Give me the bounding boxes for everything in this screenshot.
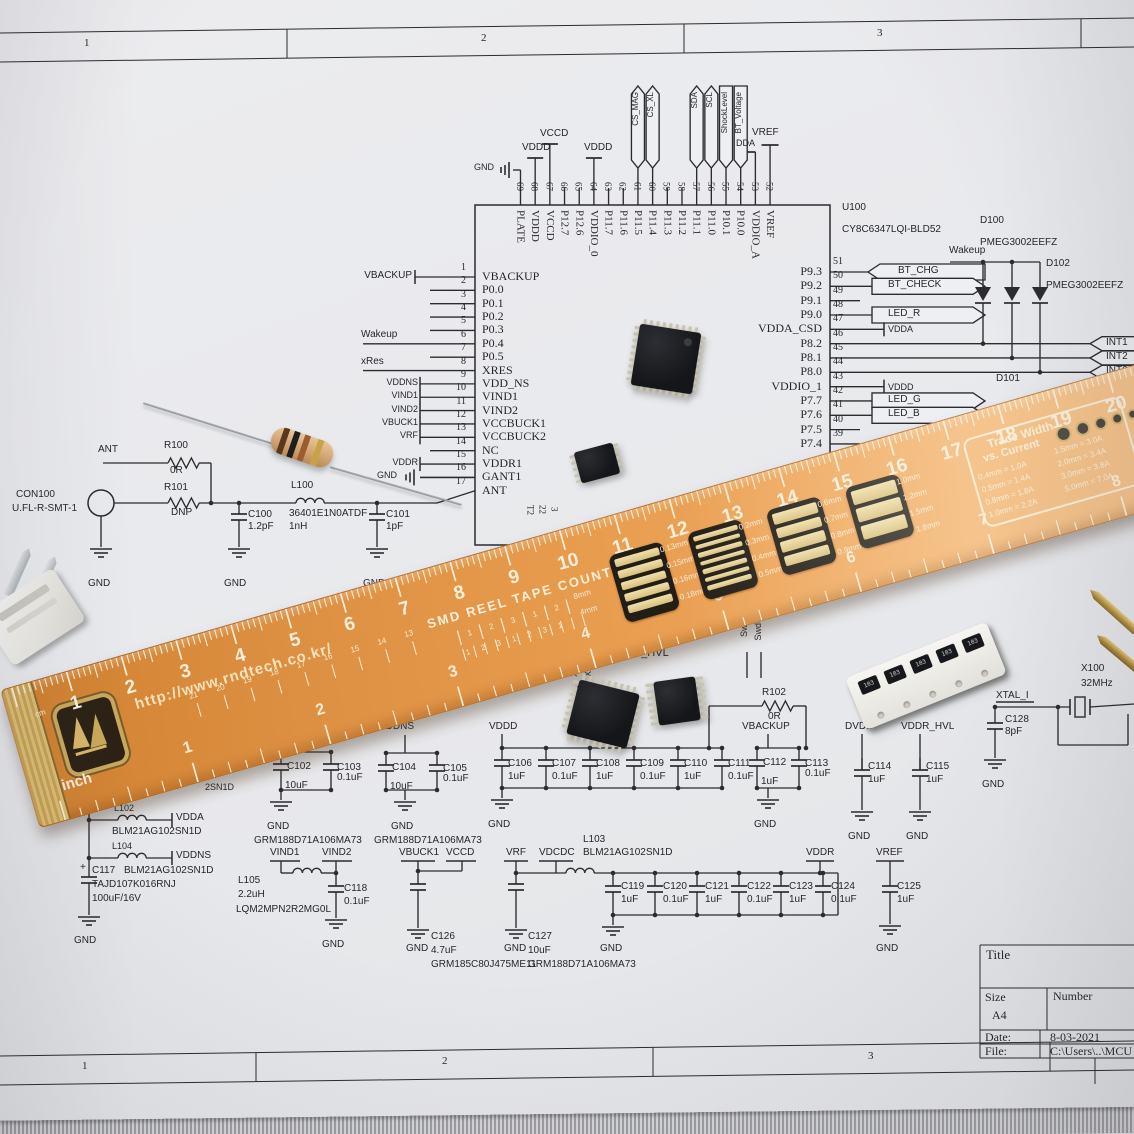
cap_banks-5-caps-0-0: C115 <box>926 762 949 773</box>
tape-sprocket-hole <box>928 690 937 699</box>
mcu-top_pins-3-1: P12.7 <box>558 210 570 235</box>
cap_banks-0-caps-1-1: 0.1uF <box>337 773 363 784</box>
vrf_filter-caps-3-0: C122 <box>747 882 771 893</box>
vrf_filter-caps-2-1: 1uF <box>705 895 722 906</box>
mcu-top_pins-14-1: P10.1 <box>720 210 732 235</box>
mcu-top_pins-1-0: 68 <box>529 182 538 191</box>
rf-c100-0: C100 <box>248 510 272 521</box>
sheet-zones_bottom-1: 2 <box>442 1056 448 1068</box>
mcu-left_pins-3-0: 4 <box>438 303 466 314</box>
r102-1: 0R <box>768 712 781 723</box>
ssop-chip <box>645 672 709 730</box>
right_nets-vddd: VDDD <box>888 383 914 392</box>
mcu-left_pins-14-0: 15 <box>438 450 466 461</box>
mcu-top_pins-9-0: 60 <box>647 182 656 191</box>
vrf_filter-vrf: VRF <box>506 848 526 859</box>
mcu-part: CY8C6347LQI-BLD52 <box>842 225 941 236</box>
rf-c101-1: 1pF <box>386 522 403 533</box>
gnd: GND <box>982 780 1004 791</box>
vrf_filter-caps-1-1: 0.1uF <box>663 895 689 906</box>
mcu-bottom_fragments-2: 3 <box>549 507 558 512</box>
sheet-zones_top-1: 2 <box>481 33 487 45</box>
tape-sprocket-hole <box>876 711 885 720</box>
mcu-top_pins-10-0: 59 <box>661 182 670 191</box>
mcu-right_pins-5-1: P8.2 <box>700 337 822 350</box>
vind_filter-l105-1: 2.2uH <box>238 890 265 901</box>
mcu-left_pins-14-1: VDDR1 <box>482 457 522 470</box>
mcu-top_pins-12-0: 57 <box>691 182 700 191</box>
rf-l100-1: 36401E1N0ATDF <box>289 509 367 520</box>
cap_banks-2-caps-4-1: 1uF <box>684 772 701 783</box>
left_nets-wakeup: Wakeup <box>361 330 397 341</box>
mcu-top_pins-9-1: P11.4 <box>646 210 658 235</box>
gnd: GND <box>474 163 494 172</box>
rf-c100-1: 1.2pF <box>248 522 274 533</box>
gnd: GND <box>488 820 510 831</box>
mcu-right_pins-3-0: 48 <box>833 300 843 311</box>
mcu-right_pins-1-1: P9.2 <box>700 279 822 292</box>
mcu-top_pins-10-1: P11.3 <box>661 210 673 235</box>
top_nets-vdda_partial: DDA <box>736 139 755 148</box>
crystal-xtal_i: XTAL_I <box>996 691 1029 702</box>
mcu-left_pins-6-0: 7 <box>438 343 466 354</box>
mcu-top_pins-7-1: P11.6 <box>617 210 629 235</box>
gnd: GND <box>754 820 776 831</box>
sheet-title_block-size: A4 <box>992 1009 1007 1022</box>
mcu-top_pins-11-1: P11.2 <box>675 210 687 235</box>
diodes-d102_part: PMEG3002EEFZ <box>1046 281 1123 292</box>
left_nets-xres: xRes <box>361 357 384 368</box>
top_nets-vddd2: VDDD <box>584 143 612 154</box>
mcu-top_pins-15-0: 54 <box>735 182 744 191</box>
mcu-left_pins-4-0: 5 <box>438 316 466 327</box>
mcu-right_pins-4-0: 47 <box>833 314 843 325</box>
cap_banks-2-caps-2-1: 1uF <box>596 772 613 783</box>
mcu-right_pins-12-1: P7.4 <box>700 437 822 450</box>
mcu-right_pins-9-0: 42 <box>833 386 843 397</box>
vrf_filter-caps-1-0: C120 <box>663 882 687 893</box>
pin1-dot <box>683 338 692 347</box>
sheet-title_block-title: Title <box>986 948 1010 962</box>
crystal-ref: X100 <box>1081 664 1104 675</box>
gnd: GND <box>504 944 526 955</box>
top_nets-flags-0: CS_MAG <box>632 92 640 126</box>
vrf_filter-caps-2-0: C121 <box>705 882 729 893</box>
mcu-right_pins-7-1: P8.0 <box>700 365 822 378</box>
buck-vccd: VCCD <box>446 848 474 859</box>
left_nets-vddns: VDDNS <box>378 378 418 387</box>
sheet-title_block-number_label: Number <box>1053 990 1092 1003</box>
left_nets-vbuck1: VBUCK1 <box>378 418 418 427</box>
top_nets-flags-1: CS_XL <box>647 92 655 117</box>
rf-r100-1: 0R <box>170 466 183 477</box>
vrf_filter-l103-1: BLM21AG102SN1D <box>583 848 673 859</box>
left_nets-vrf: VRF <box>378 431 418 440</box>
wire-connector <box>0 540 108 670</box>
right_nets-led_b: LED_B <box>888 409 920 420</box>
mcu-right_pins-8-1: VDDIO_1 <box>700 380 822 393</box>
notes-grm2: GRM188D71A106MA73 <box>374 836 482 847</box>
mcu-bottom_fragments-0: T2 <box>525 505 534 515</box>
tape-sprocket-hole <box>980 669 989 678</box>
left_nets-vddr: VDDR <box>378 458 418 467</box>
mcu-right_pins-1-0: 50 <box>833 271 843 282</box>
mcu-left_pins-2-1: P0.1 <box>482 297 504 310</box>
gnd: GND <box>391 822 413 833</box>
mcu-right_pins-0-0: 51 <box>833 257 843 268</box>
bottom_left-polarity: + <box>80 863 86 874</box>
cap_banks-1-caps-0-0: C104 <box>392 763 416 774</box>
vind_filter-l105-0: L105 <box>238 876 260 887</box>
mcu-top_pins-17-0: 52 <box>764 182 773 191</box>
rf-con_ref: CON100 <box>16 490 55 501</box>
tape-sprocket-hole <box>954 679 963 688</box>
cap_banks-3-net: VBACKUP <box>742 722 790 733</box>
mcu-right_pins-7-0: 44 <box>833 357 843 368</box>
mcu-right_pins-11-1: P7.5 <box>700 423 822 436</box>
mcu-top_pins-17-1: VREF <box>764 210 776 238</box>
cap_banks-4-caps-0-0: C114 <box>868 762 891 773</box>
mcu-left_pins-2-0: 3 <box>438 290 466 301</box>
qfp-chip <box>625 318 707 400</box>
cap_banks-2-caps-0-1: 1uF <box>508 772 525 783</box>
rf-l100-0: L100 <box>291 481 313 492</box>
mcu-left_pins-3-1: P0.2 <box>482 310 504 323</box>
vrf_filter-c127-0: C127 <box>528 932 552 943</box>
mcu-left_pins-15-1: GANT1 <box>482 470 521 483</box>
top_nets-vref: VREF <box>752 128 779 139</box>
cap_banks-2-caps-5-1: 0.1uF <box>728 772 754 783</box>
bottom_left-vdda: VDDA <box>176 813 204 824</box>
rf-r100-0: R100 <box>164 441 188 452</box>
smd-resistor: 103 <box>857 675 881 695</box>
bottom_left-c117-2: 100uF/16V <box>92 894 141 905</box>
gnd: GND <box>406 944 428 955</box>
cap_banks-1-caps-1-1: 0.1uF <box>443 774 469 785</box>
vrf_filter-vddr: VDDR <box>806 848 834 859</box>
cap_banks-2-caps-3-1: 0.1uF <box>640 772 666 783</box>
mcu-top_pins-3-0: 66 <box>559 182 568 191</box>
cap_banks-3-caps-0-0: C112 <box>763 758 786 769</box>
bottom_left-c117-1: TAJD107K016RNJ <box>92 880 176 891</box>
sheet-title_block-date_label: Date: <box>985 1031 1011 1044</box>
mcu-left_pins-5-0: 6 <box>438 330 466 341</box>
mcu-left_pins-7-0: 8 <box>438 357 466 368</box>
cap_banks-5-caps-0-1: 1uF <box>926 775 943 786</box>
mcu-ref: U100 <box>842 203 866 214</box>
vrf_filter-c127-2: GRM188D71A106MA73 <box>528 960 636 971</box>
left_nets-vind2: VIND2 <box>378 405 418 414</box>
vrf_filter-caps-4-1: 1uF <box>789 895 806 906</box>
crystal-freq: 32MHz <box>1081 679 1113 690</box>
gnd: GND <box>906 832 928 843</box>
mcu-top_pins-4-1: P12.6 <box>573 210 585 235</box>
cap_banks-0-caps-0-1: 10uF <box>285 781 308 792</box>
mcu-right_pins-6-1: P8.1 <box>700 351 822 364</box>
bottom_left-c117-0: C117 <box>92 866 115 877</box>
mcu-right_pins-4-1: VDDA_CSD <box>700 322 822 335</box>
vind_filter-vind1: VIND1 <box>270 848 299 859</box>
smd-resistor: 103 <box>935 643 959 663</box>
bottom_left-l104-0: L104 <box>112 842 132 851</box>
smd-resistor: 103 <box>883 664 907 684</box>
vind_filter-l105-2: LQM2MPN2R2MG0L <box>236 905 331 916</box>
mcu-right_pins-5-0: 46 <box>833 329 843 340</box>
mcu-left_pins-11-0: 12 <box>438 410 466 421</box>
mcu-left_pins-16-1: ANT <box>482 484 507 497</box>
cap_banks-2-caps-1-0: C107 <box>552 759 576 770</box>
vrf_filter-l103-0: L103 <box>583 835 605 846</box>
bottom_left-partial: 2SN1D <box>205 783 234 792</box>
sheet-title_block-file: C:\Users\..\MCU <box>1050 1045 1132 1058</box>
gnd: GND <box>224 579 246 590</box>
top_nets-flags-4: ShockLevel <box>721 92 729 133</box>
buck-c126-0: C126 <box>431 932 455 943</box>
mcu-top_pins-5-1: VDDIO_0 <box>587 210 599 256</box>
smd-resistor: 103 <box>909 654 933 674</box>
mcu-top_pins-16-0: 53 <box>749 182 758 191</box>
mcu-top_pins-2-1: VCCD <box>543 210 555 241</box>
cap_banks-1-caps-0-1: 10uF <box>390 782 413 793</box>
bottom_left-l104-1: BLM21AG102SN1D <box>124 866 214 877</box>
right_nets-bt_chg: BT_CHG <box>898 266 939 277</box>
top_nets-flags-5: BT_Voltage <box>735 92 743 133</box>
mcu-right_pins-6-0: 45 <box>833 343 843 354</box>
rf-l100-2: 1nH <box>289 522 307 533</box>
gnd: GND <box>876 944 898 955</box>
rf-c101-0: C101 <box>386 510 410 521</box>
mcu-right_pins-9-1: P7.7 <box>700 394 822 407</box>
mcu-left_pins-4-1: P0.3 <box>482 323 504 336</box>
mcu-top_pins-2-0: 67 <box>544 182 553 191</box>
diodes-d102_ref: D102 <box>1046 259 1070 270</box>
mcu-left_pins-6-1: P0.5 <box>482 350 504 363</box>
rf-con_part: U.FL-R-SMT-1 <box>12 504 77 515</box>
mcu-left_pins-1-0: 2 <box>438 276 466 287</box>
bottom_left-l102-1: BLM21AG102SN1D <box>112 827 202 838</box>
mcu-top_pins-14-0: 55 <box>720 182 729 191</box>
vref_cap-vref: VREF <box>876 848 903 859</box>
mcu-top_pins-0-0: 69 <box>515 182 524 191</box>
right_nets-led_g: LED_G <box>888 395 921 406</box>
mcu-right_pins-12-0: 39 <box>833 429 843 440</box>
cap_banks-5-net: VDDR_HVL <box>901 722 954 733</box>
mcu-top_pins-8-0: 61 <box>632 182 641 191</box>
mcu-left_pins-5-1: P0.4 <box>482 337 504 350</box>
notes-grm1: GRM188D71A106MA73 <box>254 836 362 847</box>
mcu-left_pins-15-0: 16 <box>438 463 466 474</box>
crystal-c128-0: C128 <box>1005 715 1029 726</box>
diodes-d100_part: PMEG3002EEFZ <box>980 238 1057 249</box>
left_nets-vbackup: VBACKUP <box>357 271 412 282</box>
cap_banks-2-caps-4-0: C110 <box>684 759 707 770</box>
mcu-right_pins-2-1: P9.1 <box>700 294 822 307</box>
gnd: GND <box>600 944 622 955</box>
vrf_filter-caps-0-1: 1uF <box>621 895 638 906</box>
cap_banks-2-caps-1-1: 0.1uF <box>552 772 578 783</box>
top_nets-vddd1: VDDD <box>522 143 550 154</box>
mcu-left_pins-0-0: 1 <box>438 263 466 274</box>
rf-r101-0: R101 <box>164 483 188 494</box>
mcu-left_pins-8-1: VDD_NS <box>482 377 529 390</box>
vind_filter-c118-0: C118 <box>344 884 367 895</box>
sheet-zones_bottom-0: 1 <box>82 1061 88 1073</box>
mcu-left_pins-9-1: VIND1 <box>482 390 518 403</box>
gnd: GND <box>848 832 870 843</box>
rf-ant: ANT <box>98 445 118 456</box>
vrf_filter-caps-5-1: 0.1uF <box>831 895 857 906</box>
diodes-d101_ref: D101 <box>996 374 1020 385</box>
right_nets-ints-0: INT1 <box>1106 338 1128 349</box>
vrf_filter-caps-5-0: C124 <box>831 882 855 893</box>
mcu-right_pins-0-1: P9.3 <box>700 265 822 278</box>
top_nets-flags-3: SCL <box>706 92 714 108</box>
sheet-title_block-file_label: File: <box>985 1045 1007 1058</box>
vind_filter-vind2: VIND2 <box>322 848 351 859</box>
cap_banks-2-caps-5-0: C111 <box>728 759 750 770</box>
mcu-top_pins-5-0: 64 <box>588 182 597 191</box>
mcu-top_pins-11-0: 58 <box>676 182 685 191</box>
vrf_filter-caps-4-0: C123 <box>789 882 813 893</box>
mcu-top_pins-1-1: VDDD <box>529 210 541 242</box>
mcu-top_pins-13-1: P11.0 <box>705 210 717 235</box>
mcu-left_pins-1-1: P0.0 <box>482 283 504 296</box>
cap_banks-3-caps-0-1: 1uF <box>761 777 778 788</box>
cap_banks-2-net: VDDD <box>489 722 517 733</box>
mcu-left_pins-10-1: VIND2 <box>482 404 518 417</box>
gnd: GND <box>74 936 96 947</box>
left_nets-vind1: VIND1 <box>378 391 418 400</box>
mcu-top_pins-12-1: P11.1 <box>690 210 702 235</box>
buck-vbuck1: VBUCK1 <box>399 848 439 859</box>
bottom_left-vddns: VDDNS <box>176 851 211 862</box>
right_nets-vdda: VDDA <box>888 325 913 334</box>
vrf_filter-vdcdc: VDCDC <box>539 848 575 859</box>
sheet-title_block-date: 8-03-2021 <box>1050 1031 1100 1044</box>
rf-r101-1: DNP <box>171 508 192 519</box>
right_nets-ints-1: INT2 <box>1106 352 1128 363</box>
gnd: GND <box>322 940 344 951</box>
gnd: GND <box>267 822 289 833</box>
mcu-left_pins-9-0: 10 <box>438 383 466 394</box>
cap_banks-2-caps-2-0: C108 <box>596 759 620 770</box>
photo-schematic-with-pcb-ruler: 123123TitleSizeA4NumberDate:8-03-2021Fil… <box>0 0 1134 1134</box>
cap_banks-2-caps-3-0: C109 <box>640 759 664 770</box>
tape-sprocket-hole <box>902 700 911 709</box>
mcu-left_pins-16-0: 17 <box>438 477 466 488</box>
vref_cap-c125-0: C125 <box>897 882 921 893</box>
mcu-top_pins-15-1: P10.0 <box>734 210 746 235</box>
right_nets-led_r: LED_R <box>888 309 920 320</box>
mcu-top_pins-16-1: VDDIO_A <box>749 210 761 259</box>
mcu-top_pins-0-1: PLATE <box>514 210 526 243</box>
vind_filter-c118-1: 0.1uF <box>344 897 370 908</box>
mcu-top_pins-7-0: 62 <box>617 182 626 191</box>
vrf_filter-caps-3-1: 0.1uF <box>747 895 773 906</box>
cap_banks-2-caps-0-0: C106 <box>508 759 532 770</box>
mcu-left_pins-11-1: VCCBUCK1 <box>482 417 546 430</box>
diodes-d100_ref: D100 <box>980 216 1004 227</box>
buck-c126-1: 4.7uF <box>431 946 457 957</box>
mcu-top_pins-13-0: 56 <box>705 182 714 191</box>
cap_banks-4-caps-0-1: 1uF <box>868 775 885 786</box>
mcu-left_pins-7-1: XRES <box>482 364 513 377</box>
mcu-left_pins-13-0: 14 <box>438 437 466 448</box>
sheet-title_block-size_label: Size <box>985 991 1006 1004</box>
mcu-left_pins-12-1: VCCBUCK2 <box>482 430 546 443</box>
mcu-right_pins-10-0: 41 <box>833 400 843 411</box>
vrf_filter-caps-0-0: C119 <box>621 882 644 893</box>
cap_banks-0-caps-0-0: C102 <box>287 762 311 773</box>
r102-0: R102 <box>762 688 786 699</box>
sheet-zones_bottom-2: 3 <box>868 1051 874 1063</box>
vref_cap-c125-1: 1uF <box>897 895 914 906</box>
mcu-top_pins-8-1: P11.5 <box>631 210 643 235</box>
mcu-left_pins-0-1: VBACKUP <box>482 270 539 283</box>
top_nets-vccd: VCCD <box>540 129 568 140</box>
mcu-right_pins-8-0: 43 <box>833 372 843 383</box>
buck-c126-2: GRM185C80J475ME11 <box>431 960 536 971</box>
mcu-right_pins-11-0: 40 <box>833 415 843 426</box>
right_nets-bt_check: BT_CHECK <box>888 280 941 291</box>
mcu-left_pins-8-0: 9 <box>438 370 466 381</box>
mcu-top_pins-6-0: 63 <box>603 182 612 191</box>
cap_banks-3-caps-1-1: 0.1uF <box>805 769 831 780</box>
mcu-top_pins-4-0: 65 <box>573 182 582 191</box>
crystal-c128-1: 8pF <box>1005 727 1022 738</box>
mcu-top_pins-6-1: P11.7 <box>602 210 614 235</box>
sheet-zones_top-2: 3 <box>877 28 883 40</box>
mcu-left_pins-13-1: NC <box>482 444 499 457</box>
mcu-bottom_fragments-1: 22 <box>537 505 546 514</box>
mcu-right_pins-3-1: P9.0 <box>700 308 822 321</box>
top_nets-flags-2: SDA <box>691 92 699 108</box>
mcu-left_pins-10-0: 11 <box>438 397 466 408</box>
mcu-left_pins-12-0: 13 <box>438 423 466 434</box>
vrf_filter-c127-1: 10uF <box>528 946 551 957</box>
smd-resistor: 103 <box>961 633 985 653</box>
mcu-right_pins-10-1: P7.6 <box>700 408 822 421</box>
mcu-right_pins-2-0: 49 <box>833 286 843 297</box>
sheet-zones_top-0: 1 <box>84 38 90 50</box>
